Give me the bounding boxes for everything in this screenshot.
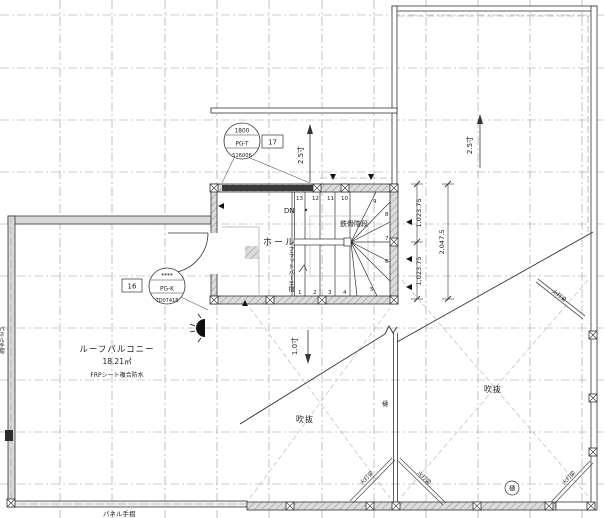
grid-lines (0, 0, 605, 518)
panel-handrail-left-label: パネル手摺 (0, 326, 5, 355)
gutter-pipe (394, 333, 398, 502)
svg-text:13: 13 (296, 196, 303, 202)
winder-tread-lines (351, 192, 390, 296)
dn-label: DN (284, 207, 295, 215)
balcony-name: ルーフバルコニー (79, 345, 154, 355)
stair-label: 鉄骨階段 (340, 219, 368, 228)
tag-17-size: 1800 (235, 129, 250, 135)
tag-16-size: **** (161, 274, 173, 280)
slope-arrow-main-roof: 2.5寸 (465, 114, 483, 168)
svg-text:5: 5 (370, 287, 374, 293)
svg-text:9: 9 (373, 199, 377, 205)
svg-text:10: 10 (341, 196, 348, 202)
tag-16-number: 16 (128, 283, 137, 291)
svg-text:7: 7 (385, 236, 389, 242)
svg-text:4: 4 (343, 290, 347, 296)
svg-text:12: 12 (312, 196, 319, 202)
svg-text:3: 3 (328, 290, 332, 296)
steel-stair (292, 192, 390, 296)
void-label-right: 吹抜 (484, 384, 502, 394)
hall-floor-edge (222, 227, 259, 296)
floor-plan-drawing: 1800 PG-T S16006 17 **** PG-K TD07418 16… (0, 0, 605, 518)
floor-plan-sheet: 1800 PG-T S16006 17 **** PG-K TD07418 16… (0, 0, 605, 518)
gutter-circle-mark: 樋 (505, 481, 519, 495)
stair-landing-end (344, 238, 351, 246)
roof-eave-dashed-lines (320, 16, 591, 232)
tag-16-id: TD07418 (155, 298, 179, 304)
dn-leader-dot (305, 209, 307, 211)
slope-label-valley: 1.0寸 (290, 337, 299, 355)
svg-text:11: 11 (327, 196, 334, 202)
door-opening-gap (210, 233, 218, 274)
svg-text:8: 8 (385, 212, 389, 218)
stair-direction-mark (299, 265, 307, 272)
panel-handrail-bottom-label: パネル手摺 (103, 509, 136, 518)
void-cross-marks (250, 280, 588, 498)
door-swing (168, 233, 208, 273)
svg-text:2: 2 (313, 290, 317, 296)
wall-post-mark (5, 430, 13, 441)
dim-total: 2,047.5 (438, 230, 446, 255)
dim-lower: 1,023.75 (415, 257, 423, 286)
gutter-pipe-label: 樋 (382, 400, 388, 408)
balcony-spec: FRPシート複合防水 (90, 371, 143, 379)
tag-17-number: 17 (268, 139, 277, 147)
svg-text:6: 6 (385, 259, 389, 265)
slope-arrow-valley: 1.0寸 (290, 330, 311, 364)
dim-upper: 1,023.75 (415, 199, 423, 228)
slope-label-stair-roof: 2.5寸 (296, 146, 305, 164)
tag-16-code: PG-K (160, 287, 174, 293)
tag-17-code: PG-T (235, 142, 249, 148)
tag-16-leader (181, 297, 208, 310)
brace-label-4: 火打梁 (550, 287, 568, 304)
slope-arrow-stair-roof: 2.5寸 (296, 124, 313, 182)
window-tag-16: **** PG-K TD07418 16 (122, 268, 185, 304)
window-band-pgt (222, 185, 313, 191)
slope-label-main-roof: 2.5寸 (465, 136, 474, 154)
gutter-circle-label: 樋 (509, 485, 515, 493)
stair-landing-bar (294, 239, 344, 245)
balcony-area: 18.21㎡ (103, 357, 132, 366)
corner-braces (350, 279, 593, 505)
tag-17-id: S16006 (232, 153, 252, 159)
void-label-left: 吹抜 (296, 414, 314, 424)
svg-text:1: 1 (298, 290, 302, 296)
stair-handrail-label: フラットバー手摺 (287, 246, 294, 294)
